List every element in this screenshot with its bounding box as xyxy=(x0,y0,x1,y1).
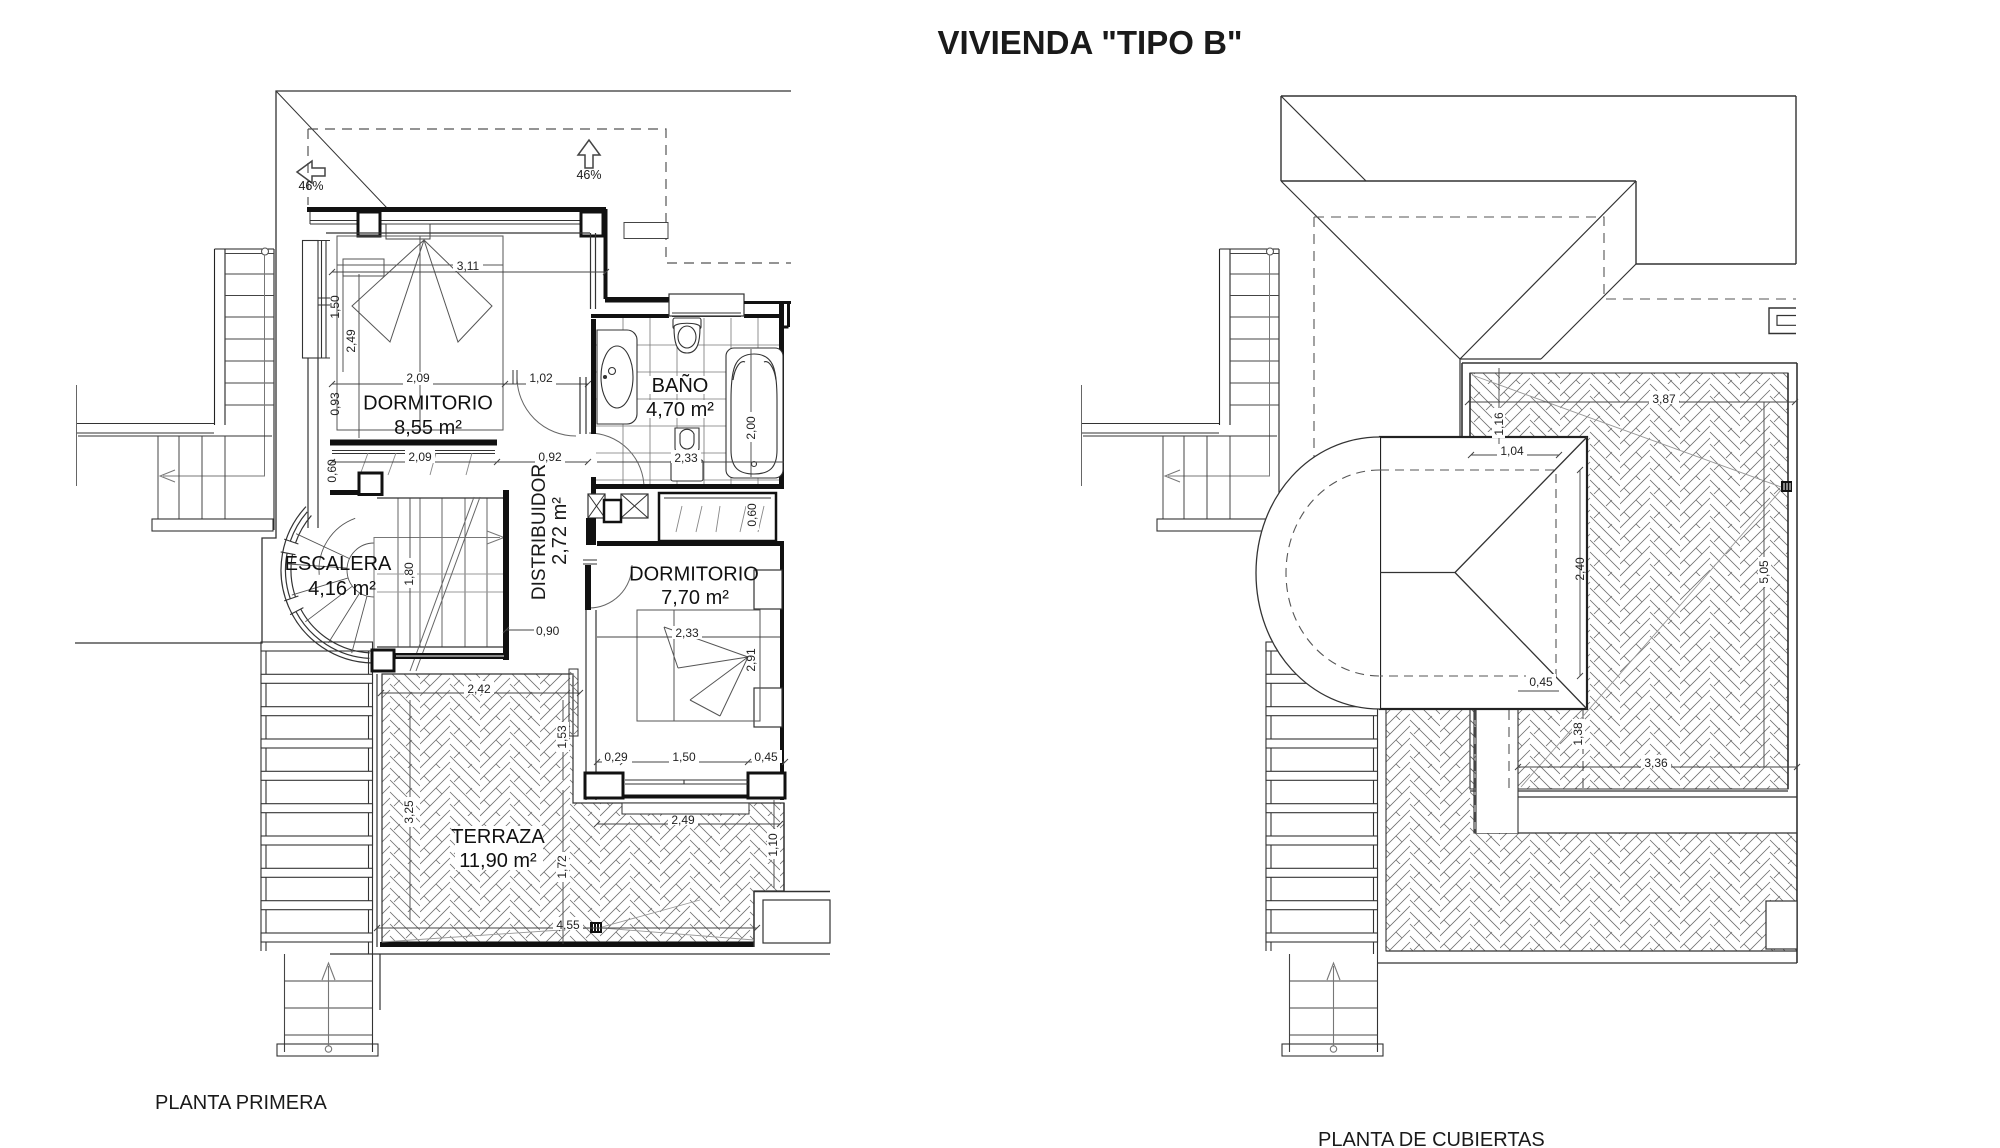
svg-text:2,91: 2,91 xyxy=(744,648,758,672)
svg-text:46%: 46% xyxy=(576,168,601,182)
svg-text:0,93: 0,93 xyxy=(328,392,342,416)
svg-text:2,09: 2,09 xyxy=(406,371,430,385)
svg-text:3,11: 3,11 xyxy=(457,259,480,273)
svg-text:ESCALERA: ESCALERA xyxy=(285,553,392,575)
svg-text:0,60: 0,60 xyxy=(325,459,339,483)
svg-text:8,55 m²: 8,55 m² xyxy=(394,417,462,439)
svg-text:1,53: 1,53 xyxy=(555,725,569,749)
svg-text:1,38: 1,38 xyxy=(1571,722,1585,746)
svg-text:0,45: 0,45 xyxy=(1529,675,1553,689)
svg-text:5,05: 5,05 xyxy=(1757,560,1771,584)
svg-text:DORMITORIO: DORMITORIO xyxy=(363,393,493,415)
svg-text:7,70 m²: 7,70 m² xyxy=(661,587,729,609)
svg-text:0,29: 0,29 xyxy=(604,750,628,764)
svg-text:3,25: 3,25 xyxy=(402,800,416,824)
svg-text:1,10: 1,10 xyxy=(766,833,780,857)
svg-text:2,72 m²: 2,72 m² xyxy=(549,497,571,565)
svg-text:2,49: 2,49 xyxy=(671,813,695,827)
svg-text:3,87: 3,87 xyxy=(1652,392,1676,406)
svg-text:1,50: 1,50 xyxy=(672,750,696,764)
svg-text:4,55: 4,55 xyxy=(556,918,580,932)
svg-text:1,80: 1,80 xyxy=(402,562,416,586)
svg-text:2,49: 2,49 xyxy=(344,329,358,353)
svg-text:2,42: 2,42 xyxy=(467,682,491,696)
svg-text:PLANTA PRIMERA: PLANTA PRIMERA xyxy=(155,1092,328,1114)
svg-text:0,60: 0,60 xyxy=(745,503,759,527)
svg-text:0,92: 0,92 xyxy=(538,450,562,464)
svg-text:2,09: 2,09 xyxy=(408,450,432,464)
svg-text:4,16 m²: 4,16 m² xyxy=(308,578,376,600)
svg-text:2,40: 2,40 xyxy=(1573,557,1587,581)
svg-text:1,50: 1,50 xyxy=(328,295,342,319)
svg-text:1,72: 1,72 xyxy=(555,855,569,879)
svg-text:BAÑO: BAÑO xyxy=(652,373,709,397)
svg-text:DISTRIBUIDOR: DISTRIBUIDOR xyxy=(529,464,550,600)
svg-text:2,33: 2,33 xyxy=(675,626,699,640)
svg-text:VIVIENDA "TIPO B": VIVIENDA "TIPO B" xyxy=(937,24,1242,61)
svg-text:4,70 m²: 4,70 m² xyxy=(646,399,714,421)
svg-text:TERRAZA: TERRAZA xyxy=(451,826,545,848)
svg-text:PLANTA DE CUBIERTAS: PLANTA DE CUBIERTAS xyxy=(1318,1129,1545,1148)
svg-text:2,33: 2,33 xyxy=(674,451,698,465)
svg-text:11,90 m²: 11,90 m² xyxy=(459,850,537,872)
svg-text:0,45: 0,45 xyxy=(754,750,778,764)
svg-text:0,90: 0,90 xyxy=(536,624,560,638)
svg-text:1,02: 1,02 xyxy=(529,371,553,385)
svg-text:46%: 46% xyxy=(298,179,323,193)
svg-text:DORMITORIO: DORMITORIO xyxy=(629,564,759,586)
svg-text:1,16: 1,16 xyxy=(1492,412,1506,436)
svg-text:2,00: 2,00 xyxy=(744,416,758,440)
svg-text:1,04: 1,04 xyxy=(1500,444,1524,458)
svg-text:3,36: 3,36 xyxy=(1644,756,1668,770)
